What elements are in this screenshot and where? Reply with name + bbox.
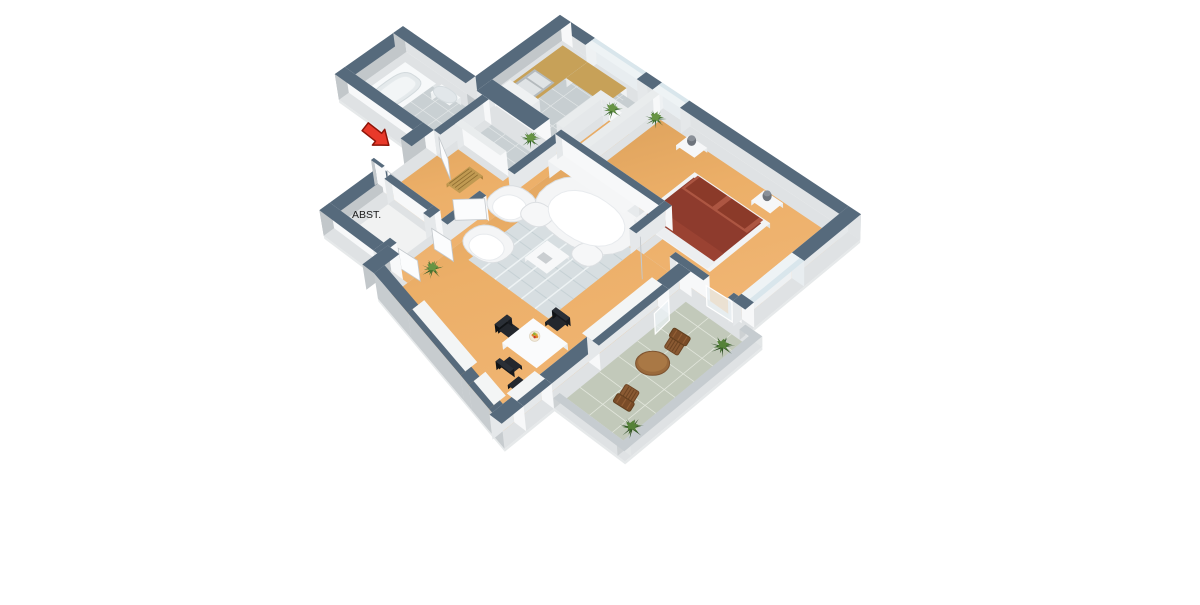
svg-text:ABST.: ABST. [352, 209, 381, 221]
